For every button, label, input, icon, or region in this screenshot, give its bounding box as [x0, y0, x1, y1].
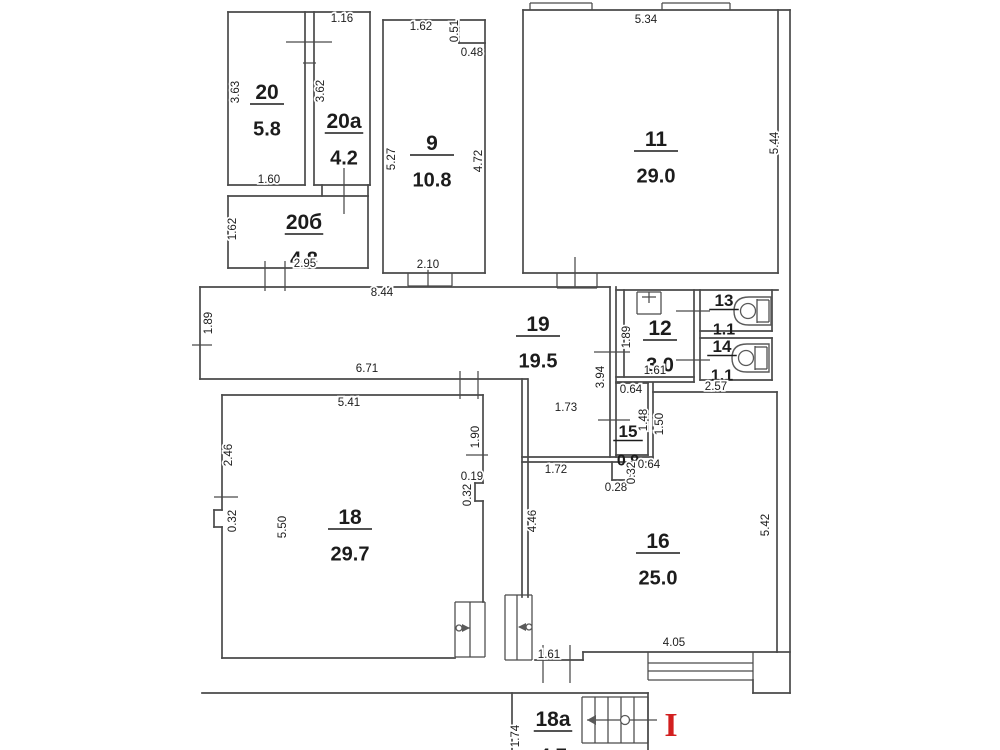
floor-plan-page: 205.820a4.220б4.8910.81129.01919.5123.01…	[0, 0, 1000, 750]
door-swing-icon	[456, 625, 462, 631]
toilet-icon	[741, 304, 756, 319]
room-label-11-number: 11	[645, 128, 668, 151]
dimension-label: 1.73	[555, 402, 577, 414]
door-swing-icon	[462, 624, 470, 632]
dimension-label: 1.89	[621, 326, 633, 348]
room-label-18-number: 18	[338, 506, 362, 529]
door-swing-icon	[518, 623, 526, 631]
dimension-label: 5.44	[769, 131, 781, 154]
dimension-label: 8.44	[371, 287, 394, 299]
room-label-13-area: 1.1	[713, 321, 735, 338]
toilet-icon	[739, 351, 754, 366]
dimension-label: 0.51	[449, 20, 461, 42]
room-label-16-number: 16	[646, 530, 669, 553]
room-label-20-number: 20	[255, 81, 278, 104]
dimension-label: 5.41	[338, 397, 360, 409]
dimension-label: 1.72	[545, 464, 567, 476]
dimension-label: 5.27	[386, 148, 398, 170]
staircase-icon	[621, 716, 630, 725]
dimension-label: 1.62	[410, 21, 432, 33]
dimension-label: 0.32	[462, 484, 474, 506]
room-label-9-area: 10.8	[413, 170, 452, 192]
room-label-20б-number: 20б	[286, 211, 322, 234]
dimension-label: 1.60	[258, 174, 280, 186]
dimension-label: 3.63	[230, 81, 242, 103]
dimension-label: 0.32	[227, 510, 239, 532]
room-label-13-number: 13	[715, 291, 734, 310]
dimension-label: 1.50	[654, 413, 666, 435]
dimension-label: 4.05	[663, 637, 685, 649]
room-label-18a-area: 4.7	[539, 746, 567, 750]
room-label-12-number: 12	[648, 317, 671, 340]
dimension-label: 4.46	[527, 510, 539, 532]
dimension-label: 6.71	[356, 363, 378, 375]
dimension-label: 1.74	[510, 724, 522, 747]
dimension-label: 2.57	[705, 381, 727, 393]
door-swing-icon	[526, 624, 532, 630]
dimension-label: 2.10	[417, 259, 439, 271]
dimension-label: 5.42	[760, 514, 772, 536]
room-label-20a-area: 4.2	[330, 148, 358, 170]
room-label-20a-number: 20a	[326, 110, 361, 133]
dimension-label: 2.46	[223, 444, 235, 466]
staircase-icon	[587, 715, 596, 725]
room-label-9-number: 9	[426, 132, 438, 155]
room-label-19-area: 19.5	[519, 351, 558, 373]
floor-plan-drawing: 205.820a4.220б4.8910.81129.01919.5123.01…	[0, 0, 1000, 750]
dimension-label: 4.72	[473, 150, 485, 172]
dimension-label: 0.48	[461, 47, 483, 59]
dimension-label: 5.34	[635, 14, 658, 26]
room-label-15-number: 15	[619, 422, 638, 441]
dimension-label: 1.61	[538, 649, 560, 661]
room-label-16-area: 25.0	[639, 568, 678, 590]
dimension-label: 0.32	[626, 462, 638, 484]
dimension-label: 3.62	[315, 80, 327, 102]
room-label-18-area: 29.7	[331, 544, 370, 566]
room-label-11-area: 29.0	[637, 166, 676, 188]
dimension-label: 5.50	[277, 516, 289, 538]
room-label-20-area: 5.8	[253, 119, 281, 141]
dimension-label: 0.19	[461, 471, 483, 483]
dimension-label: 0.64	[620, 384, 643, 396]
dimension-label: 0.28	[605, 482, 627, 494]
dimension-label: 2.95	[294, 258, 316, 270]
section-marker: I	[664, 707, 677, 744]
dimension-label: 1.48	[638, 409, 650, 431]
room-label-14-number: 14	[713, 337, 732, 356]
dimension-label: 1.62	[227, 218, 239, 240]
dimension-label: 1.16	[331, 13, 353, 25]
room-label-18a-number: 18a	[535, 708, 570, 731]
room-label-19-number: 19	[526, 313, 549, 336]
dimension-label: 3.94	[595, 365, 607, 388]
dimension-label: 1.89	[203, 312, 215, 334]
dimension-label: 0.64	[638, 459, 661, 471]
dimension-label: 1.90	[470, 426, 482, 448]
dimension-label: 1.61	[644, 365, 666, 377]
